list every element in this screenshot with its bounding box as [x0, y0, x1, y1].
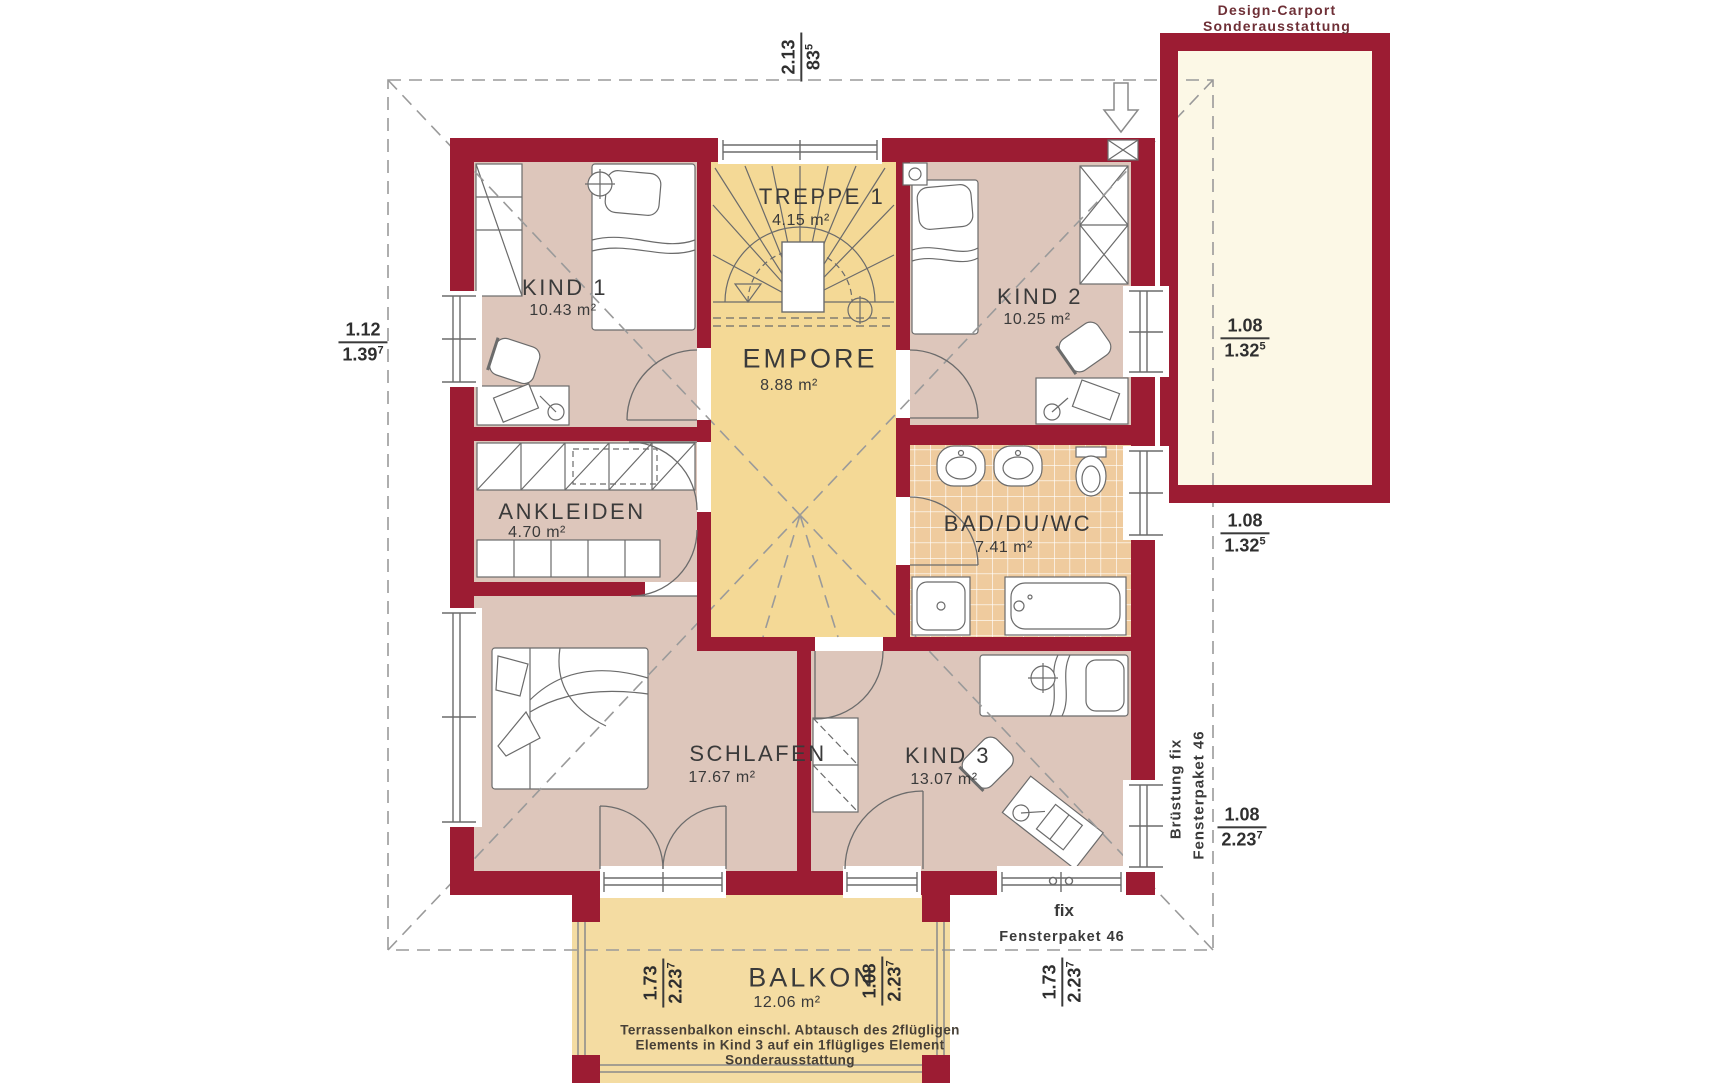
- room-label-kind1: KIND 1: [522, 275, 608, 301]
- kind1-wardrobe: [476, 164, 522, 296]
- kind2-desk: [1036, 378, 1128, 424]
- annotation-fensterpaket-bottom: Fensterpaket 46: [999, 929, 1124, 945]
- bath-sink-2: [994, 446, 1042, 486]
- kind3-bed: [980, 655, 1128, 716]
- floor-plan-drawing: [0, 0, 1720, 1086]
- room-area-bad: 7.41 m²: [975, 539, 1033, 557]
- annotation-bruestung-fix: Brüstung fix: [1168, 739, 1185, 839]
- dimension-left: 1.12 1.397: [338, 319, 387, 364]
- toilet: [1076, 447, 1106, 496]
- room-label-kind2: KIND 2: [997, 284, 1083, 310]
- carport-label-line1: Design-Carport: [1218, 2, 1337, 18]
- floor-plan-canvas: Design-Carport Sonderausstattung TREPPE …: [0, 0, 1720, 1086]
- kind2-bed: [912, 180, 978, 334]
- dimension-balkon-right: 1.08 2.237: [859, 956, 904, 1005]
- dimension-top: 2.13 835: [778, 32, 823, 81]
- room-label-balkon: BALKON: [748, 963, 876, 994]
- room-area-empore: 8.88 m²: [760, 377, 818, 395]
- annotation-fix: fix: [1054, 901, 1074, 921]
- window-kind3-right: [1123, 780, 1169, 872]
- room-area-schlafen: 17.67 m²: [688, 769, 755, 787]
- room-area-kind3: 13.07 m²: [910, 771, 977, 789]
- dimension-right-lower: 1.08 2.237: [1217, 804, 1266, 849]
- dimension-right-upper: 1.08 1.325: [1220, 315, 1269, 360]
- room-label-kind3: KIND 3: [905, 743, 991, 769]
- dimension-bottom-right: 1.73 2.237: [1039, 957, 1084, 1006]
- room-area-kind2: 10.25 m²: [1003, 311, 1070, 329]
- kind2-wardrobe: [1080, 166, 1128, 284]
- room-label-bad: BAD/DU/WC: [944, 511, 1092, 537]
- room-label-empore: EMPORE: [742, 344, 877, 375]
- room-area-ankleiden: 4.70 m²: [508, 524, 566, 542]
- window-schlafen: [436, 608, 482, 827]
- window-kind3-bottom: [997, 866, 1126, 898]
- window-bad: [1123, 446, 1169, 540]
- room-area-kind1: 10.43 m²: [529, 302, 596, 320]
- room-label-schlafen: SCHLAFEN: [689, 741, 826, 767]
- dimension-balkon-left: 1.73 2.237: [640, 958, 685, 1007]
- bath-sink: [937, 446, 985, 486]
- room-label-ankleiden: ANKLEIDEN: [498, 499, 645, 525]
- window-kind1: [436, 291, 482, 387]
- balcony-door-sill: [600, 866, 726, 898]
- window-top: [718, 134, 882, 164]
- window-kind2: [1123, 286, 1169, 377]
- room-area-balkon: 12.06 m²: [753, 994, 820, 1012]
- room-label-treppe: TREPPE 1: [759, 184, 885, 210]
- bathtub: [1005, 577, 1126, 635]
- kind1-desk: [477, 384, 569, 425]
- entry-arrow-icon: [1104, 83, 1138, 132]
- room-area-treppe: 4.15 m²: [772, 212, 830, 230]
- dimension-right-middle: 1.08 1.325: [1220, 510, 1269, 555]
- carport-label-line2: Sonderausstattung: [1203, 18, 1351, 34]
- schlafen-double-bed: [492, 648, 648, 789]
- shower: [912, 577, 970, 635]
- annotation-fensterpaket-vertical: Fensterpaket 46: [1191, 730, 1208, 859]
- balkon-note: Terrassenbalkon einschl. Abtausch des 2f…: [620, 1023, 960, 1068]
- kind3-balcony-door-sill: [843, 866, 921, 898]
